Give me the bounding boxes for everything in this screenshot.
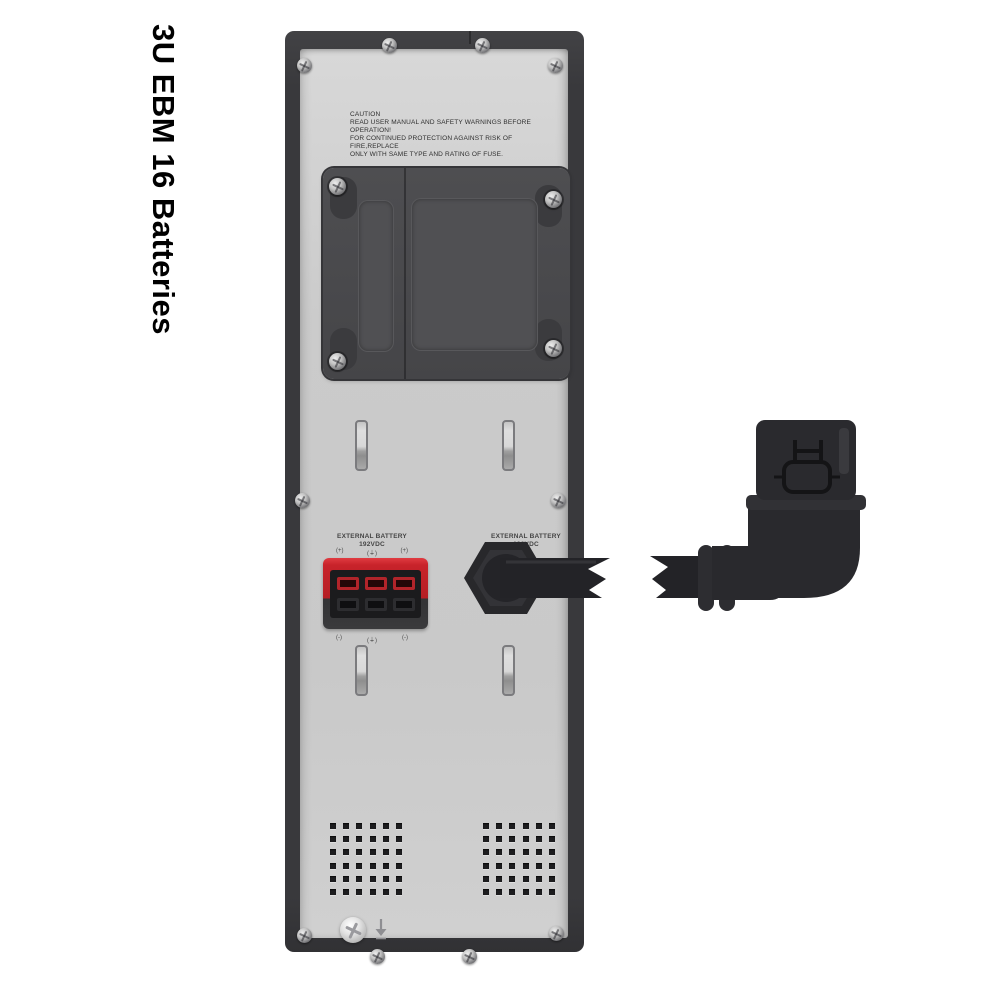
access-panel-screw: [329, 353, 346, 370]
ground-symbol-icon: [373, 919, 389, 940]
frame-screw: [297, 928, 312, 943]
label-line: EXTERNAL BATTERY: [476, 533, 576, 541]
battery-cable-segment-2: [650, 556, 740, 598]
vent-hole: [536, 876, 542, 882]
vent-hole: [396, 823, 402, 829]
vent-hole: [396, 889, 402, 895]
vent-hole: [356, 876, 362, 882]
product-title: 3U EBM 16 Batteries: [145, 24, 181, 335]
socket-slot: [393, 577, 415, 590]
access-panel-screw: [329, 178, 346, 195]
vent-hole: [496, 836, 502, 842]
battery-access-panel: [323, 168, 570, 379]
caution-line: FOR CONTINUED PROTECTION AGAINST RISK OF…: [350, 135, 560, 151]
caution-line: ONLY WITH SAME TYPE AND RATING OF FUSE.: [350, 151, 560, 159]
vent-hole: [343, 876, 349, 882]
vent-hole: [370, 876, 376, 882]
vent-hole: [330, 823, 336, 829]
frame-screw: [475, 38, 490, 53]
vent-hole: [396, 876, 402, 882]
vent-hole: [370, 889, 376, 895]
connector-latch: [784, 462, 830, 492]
vent-hole: [509, 876, 515, 882]
cable-ring: [698, 545, 714, 611]
vent-hole: [330, 876, 336, 882]
frame-screw: [297, 58, 312, 73]
vent-hole: [396, 849, 402, 855]
terminal-marks-bottom: (-) (⏚) (-): [336, 635, 408, 644]
vent-hole: [549, 876, 555, 882]
frame-seam: [469, 31, 471, 44]
socket-row: [337, 598, 415, 611]
vent-hole: [483, 849, 489, 855]
vent-hole: [496, 823, 502, 829]
vent-hole: [356, 849, 362, 855]
cable-ring: [719, 545, 735, 611]
vent-hole: [370, 823, 376, 829]
vent-hole: [496, 876, 502, 882]
vent-hole: [536, 836, 542, 842]
caution-label: CAUTION READ USER MANUAL AND SAFETY WARN…: [350, 111, 560, 159]
vent-hole: [549, 863, 555, 869]
vent-hole: [496, 889, 502, 895]
battery-connector-socket: [330, 570, 421, 618]
vent-hole: [370, 849, 376, 855]
vent-hole: [483, 876, 489, 882]
vent-hole: [536, 823, 542, 829]
terminal-marks-top: (+) (⏚) (+): [336, 548, 408, 557]
ground-mark: (⏚): [367, 635, 377, 644]
frame-screw: [295, 493, 310, 508]
vent-slot: [355, 645, 368, 696]
socket-slot: [337, 598, 359, 611]
vent-hole: [536, 889, 542, 895]
ebm-rear-unit: CAUTION READ USER MANUAL AND SAFETY WARN…: [285, 31, 584, 952]
battery-connector-port: [323, 558, 428, 629]
vent-hole: [356, 863, 362, 869]
socket-row: [337, 577, 415, 590]
access-recess-right: [411, 198, 538, 351]
vent-hole: [496, 863, 502, 869]
connector-latch-clip: [795, 440, 821, 462]
caution-line: READ USER MANUAL AND SAFETY WARNINGS BEF…: [350, 119, 560, 135]
vent-hole: [396, 836, 402, 842]
vent-hole: [330, 849, 336, 855]
vent-hole: [523, 849, 529, 855]
label-line: 192VDC: [322, 541, 422, 549]
vent-hole: [523, 836, 529, 842]
ground-mark: (⏚): [367, 548, 377, 557]
socket-slot: [393, 598, 415, 611]
label-line: EXTERNAL BATTERY: [322, 533, 422, 541]
vent-hole: [383, 823, 389, 829]
polarity-mark: (-): [402, 635, 408, 644]
vent-grid-right: [483, 823, 555, 895]
access-panel-screw: [545, 191, 562, 208]
vent-hole: [383, 849, 389, 855]
vent-hole: [509, 863, 515, 869]
polarity-mark: (-): [336, 635, 342, 644]
access-recess-left: [358, 200, 394, 352]
vent-hole: [483, 889, 489, 895]
vent-hole: [509, 836, 515, 842]
socket-slot: [337, 577, 359, 590]
external-battery-label-right: EXTERNAL BATTERY 192VDC: [476, 533, 576, 548]
vent-hole: [356, 823, 362, 829]
vent-hole: [330, 863, 336, 869]
vent-hole: [383, 863, 389, 869]
socket-slot: [365, 577, 387, 590]
frame-screw: [549, 926, 564, 941]
vent-hole: [496, 849, 502, 855]
socket-slot: [365, 598, 387, 611]
vent-hole: [483, 836, 489, 842]
vent-hole: [343, 863, 349, 869]
vent-hole: [383, 876, 389, 882]
vent-hole: [356, 836, 362, 842]
vent-hole: [549, 849, 555, 855]
vent-hole: [330, 836, 336, 842]
vent-hole: [523, 876, 529, 882]
ground-screw: [340, 917, 366, 943]
label-line: 192VDC: [476, 541, 576, 549]
vent-hole: [370, 836, 376, 842]
vent-hole: [549, 823, 555, 829]
connector-head-groove: [839, 428, 849, 474]
frame-screw: [370, 949, 385, 964]
connector-collar: [746, 495, 866, 510]
vent-slot: [502, 645, 515, 696]
vent-hole: [483, 863, 489, 869]
vent-hole: [523, 889, 529, 895]
vent-slot: [355, 420, 368, 471]
frame-screw: [548, 58, 563, 73]
vent-hole: [383, 889, 389, 895]
vent-hole: [523, 863, 529, 869]
vent-hole: [536, 863, 542, 869]
frame-screw: [382, 38, 397, 53]
vent-hole: [370, 863, 376, 869]
vent-hole: [343, 836, 349, 842]
vent-hole: [509, 849, 515, 855]
vent-hole: [396, 863, 402, 869]
frame-screw: [462, 949, 477, 964]
product-photo: 3U EBM 16 Batteries CAUTION READ USER MA…: [0, 0, 1000, 1000]
vent-hole: [523, 823, 529, 829]
connector-head: [756, 420, 856, 500]
vent-hole: [549, 836, 555, 842]
vent-grid-left: [330, 823, 402, 895]
vent-hole: [343, 823, 349, 829]
rear-panel-face: CAUTION READ USER MANUAL AND SAFETY WARN…: [300, 49, 568, 938]
connector-elbow-body: [748, 506, 860, 598]
vent-hole: [483, 823, 489, 829]
vent-hole: [536, 849, 542, 855]
vent-hole: [356, 889, 362, 895]
frame-screw: [551, 493, 566, 508]
external-battery-label-left: EXTERNAL BATTERY 192VDC: [322, 533, 422, 548]
vent-hole: [330, 889, 336, 895]
access-panel-seam: [404, 168, 406, 379]
vent-hole: [549, 889, 555, 895]
vent-hole: [383, 836, 389, 842]
vent-hole: [343, 889, 349, 895]
polarity-mark: (+): [401, 548, 409, 557]
vent-hole: [509, 823, 515, 829]
access-panel-screw: [545, 340, 562, 357]
vent-hole: [509, 889, 515, 895]
vent-hole: [343, 849, 349, 855]
caution-line: CAUTION: [350, 111, 560, 119]
vent-slot: [502, 420, 515, 471]
polarity-mark: (+): [336, 548, 344, 557]
